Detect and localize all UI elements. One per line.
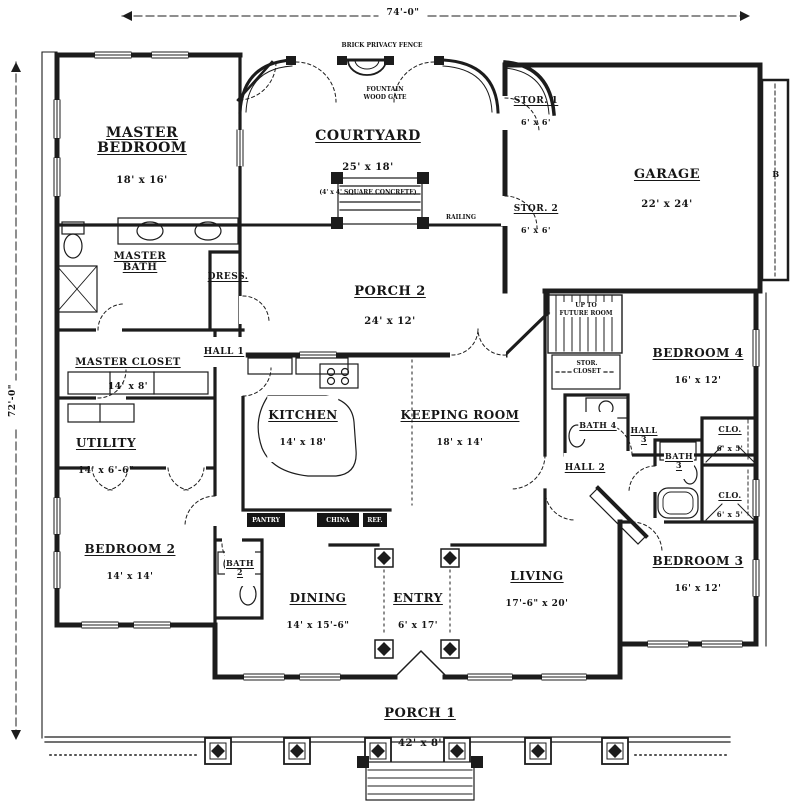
- room-label-clo-1: CLO. 6' x 5': [717, 416, 744, 462]
- room-label-kitchen: KITCHEN 14' x 18': [267, 396, 338, 462]
- room-label-master-bedroom: MASTER BEDROOM 18' x 16': [97, 110, 187, 202]
- room-label-utility: UTILITY 14' x 6'-6": [76, 424, 136, 490]
- courtyard-concrete-note: (4' x 4' SQUARE CONCRETE): [315, 189, 421, 197]
- corner-diagonal-wall: [238, 62, 272, 100]
- room-label-bath-4: BATH 4: [578, 412, 617, 439]
- porch1-steps: [366, 762, 474, 800]
- dimension-top-label: 74'-0": [386, 8, 421, 18]
- room-label-stor-2: STOR. 2 6' x 6': [514, 194, 559, 245]
- room-label-bath-3: BATH 3: [664, 443, 694, 479]
- entry-french-doors: [397, 651, 445, 675]
- pantry-cabinet-tag: PANTRY: [247, 513, 285, 527]
- room-label-keeping-room: KEEPING ROOM 18' x 14': [401, 396, 520, 462]
- china-cabinet-tag: CHINA: [317, 513, 359, 527]
- room-label-master-closet: MASTER CLOSET 14' x 8': [75, 346, 180, 403]
- note-up-to-future-room: UP TO FUTURE ROOM: [559, 302, 614, 317]
- room-label-porch-1: PORCH 1 42' x 8': [384, 692, 456, 763]
- room-label-living: LIVING 17'-6" x 20': [506, 557, 569, 623]
- dimension-left-label: 72'-0": [8, 383, 18, 418]
- room-label-porch-2: PORCH 2 24' x 12': [354, 270, 426, 341]
- room-label-bedroom-2: BEDROOM 2 14' x 14': [85, 530, 176, 596]
- room-label-bedroom-4: BEDROOM 4 16' x 12': [653, 334, 744, 400]
- room-label-hall-3: HALL 3: [630, 417, 657, 453]
- note-stor-closet: STOR. CLOSET: [572, 360, 602, 375]
- room-label-master-bath: MASTER BATH: [114, 240, 166, 285]
- garage-door-pad: [762, 80, 788, 280]
- room-label-garage: GARAGE 22' x 24': [634, 153, 700, 224]
- room-label-clo-2: CLO. 6' x 5': [717, 482, 744, 528]
- room-label-stor-1: STOR. 1 6' x 6': [514, 86, 559, 137]
- room-label-hall-1: HALL 1: [203, 337, 246, 367]
- note-fountain-wood-gate: FOUNTAIN WOOD GATE: [364, 86, 407, 101]
- room-label-hall-2: HALL 2: [564, 453, 607, 483]
- ref-cabinet-tag: REF.: [363, 513, 387, 527]
- room-label-entry: ENTRY 6' x 17': [393, 579, 443, 645]
- room-label-dress: DRESS.: [208, 262, 249, 292]
- room-label-bedroom-3: BEDROOM 3 16' x 12': [653, 542, 744, 608]
- room-label-courtyard: COURTYARD 25' x 18' (4' x 4' SQUARE CONC…: [315, 113, 421, 212]
- floor-plan: 74'-0" 72'-0" BRICK PRIVACY FENCE FOUNTA…: [0, 0, 800, 805]
- room-label-dining: DINING 14' x 15'-6": [287, 579, 350, 645]
- note-railing: RAILING: [446, 214, 476, 222]
- room-label-bath-2: BATH 2: [225, 550, 255, 586]
- garage-marker-label: B: [772, 170, 779, 179]
- note-brick-privacy-fence: BRICK PRIVACY FENCE: [342, 42, 423, 50]
